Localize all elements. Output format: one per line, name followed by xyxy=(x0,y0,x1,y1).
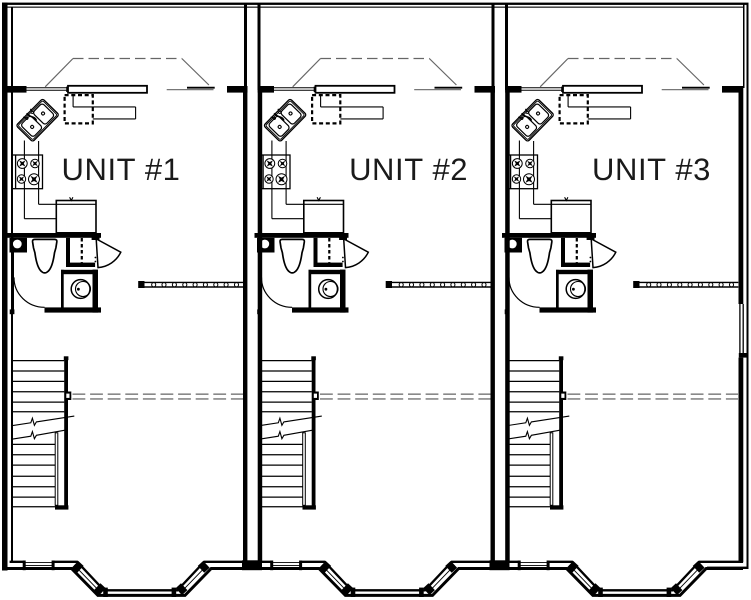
svg-text:UNIT #2: UNIT #2 xyxy=(349,152,468,187)
svg-text:UNIT #3: UNIT #3 xyxy=(592,152,711,187)
svg-text:UNIT #1: UNIT #1 xyxy=(61,152,180,187)
